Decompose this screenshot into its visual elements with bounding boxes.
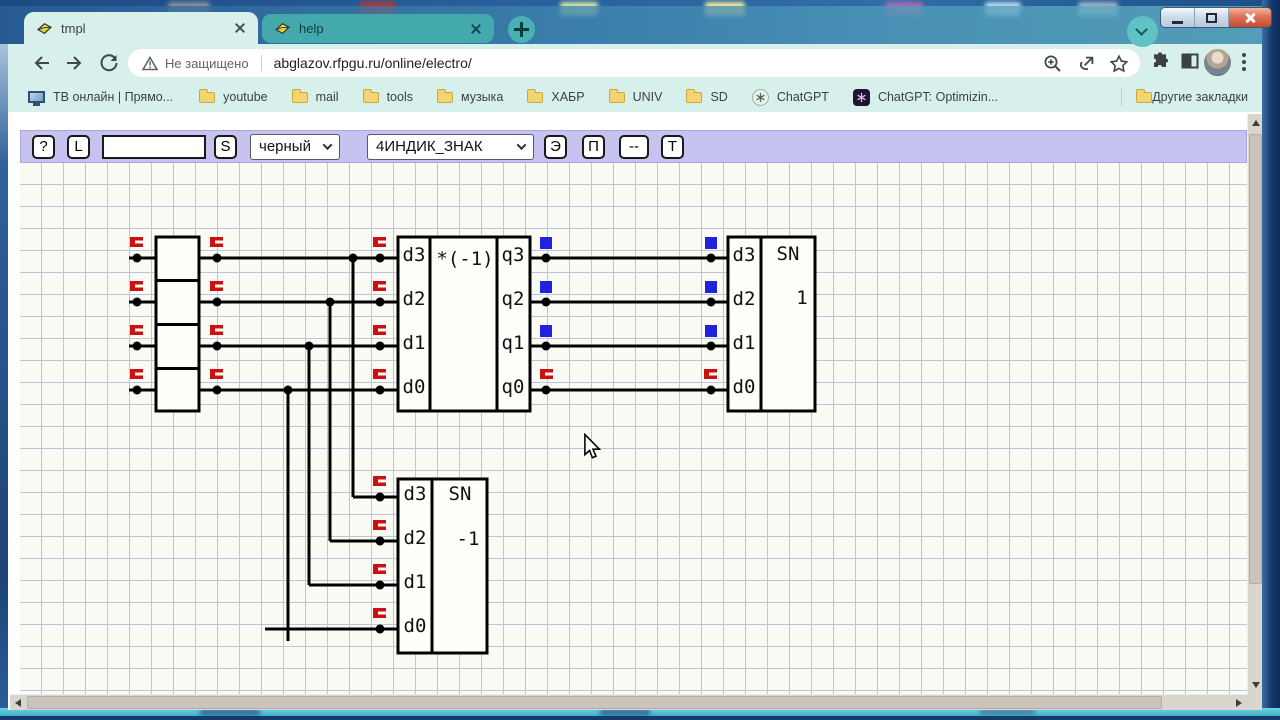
pin-label: d2 xyxy=(733,288,756,310)
signal-marker-off[interactable] xyxy=(210,237,223,247)
load-button[interactable]: L xyxy=(67,135,90,159)
pin-dot[interactable] xyxy=(133,254,142,263)
folder-icon xyxy=(1136,92,1152,103)
folder-icon xyxy=(199,92,215,103)
signal-marker-off[interactable] xyxy=(373,564,386,574)
junction-dot[interactable] xyxy=(284,386,293,395)
reload-button[interactable] xyxy=(98,52,120,74)
desktop-icon xyxy=(200,709,260,716)
tab-title: help xyxy=(299,21,324,36)
maximize-icon xyxy=(1206,13,1217,23)
address-bar[interactable]: Не защищено abglazov.rfpgu.ru/online/ele… xyxy=(128,49,1140,77)
security-label: Не защищено xyxy=(165,56,249,71)
divider xyxy=(1121,88,1122,106)
bookmarks-bar: ТВ онлайн | Прямо... youtube mail tools … xyxy=(8,82,1262,112)
pin-dot[interactable] xyxy=(707,342,716,351)
indicator-value: -1 xyxy=(457,528,480,550)
zoom-icon[interactable] xyxy=(1043,54,1063,74)
bookmark-folder[interactable]: музыка xyxy=(437,90,503,104)
pin-dot[interactable] xyxy=(213,298,222,307)
signal-marker-on[interactable] xyxy=(705,281,717,293)
pin-label: q1 xyxy=(502,332,525,354)
bookmark-folder[interactable]: tools xyxy=(363,90,413,104)
pin-dot[interactable] xyxy=(542,342,551,351)
signal-marker-off[interactable] xyxy=(210,281,223,291)
signal-marker-off[interactable] xyxy=(373,325,386,335)
close-icon xyxy=(1244,12,1256,24)
pin-dot[interactable] xyxy=(376,537,385,546)
tab-help[interactable]: help xyxy=(262,14,494,43)
pin-label: q0 xyxy=(502,376,525,398)
pin-dot[interactable] xyxy=(376,254,385,263)
bookmark-item[interactable]: ChatGPT xyxy=(752,89,829,106)
monitor-icon xyxy=(28,91,45,103)
wire-button[interactable]: -- xyxy=(619,135,649,159)
close-window-button[interactable] xyxy=(1229,8,1271,27)
signal-marker-off[interactable] xyxy=(210,369,223,379)
pin-label: d1 xyxy=(733,332,756,354)
extensions-puzzle-icon[interactable] xyxy=(1150,51,1170,71)
pin-dot[interactable] xyxy=(376,625,385,634)
chevron-down-icon xyxy=(1135,23,1148,36)
pin-dot[interactable] xyxy=(376,581,385,590)
pin-label: d3 xyxy=(403,244,426,266)
signal-marker-off[interactable] xyxy=(130,281,143,291)
horizontal-scrollbar[interactable] xyxy=(10,694,1247,710)
scroll-left-arrow[interactable] xyxy=(15,699,21,707)
blocks[interactable] xyxy=(156,237,815,653)
scroll-down-arrow[interactable] xyxy=(1252,682,1260,688)
signal-marker-off[interactable] xyxy=(540,369,553,379)
chatgpt-icon xyxy=(752,89,769,106)
pin-dot[interactable] xyxy=(376,386,385,395)
pin-label: d1 xyxy=(403,332,426,354)
vertical-scrollbar[interactable] xyxy=(1247,114,1262,694)
share-icon[interactable] xyxy=(1076,54,1096,74)
bookmark-folder[interactable]: mail xyxy=(292,90,339,104)
scrollbar-thumb[interactable] xyxy=(1249,134,1262,584)
signal-marker-off[interactable] xyxy=(130,369,143,379)
folder-icon xyxy=(437,92,453,103)
window-border xyxy=(0,44,8,710)
signal-marker-off[interactable] xyxy=(704,369,717,379)
scroll-up-arrow[interactable] xyxy=(1252,120,1260,126)
pin-dot[interactable] xyxy=(707,386,716,395)
minimize-icon xyxy=(1172,21,1183,24)
bookmark-star-icon[interactable] xyxy=(1109,54,1129,74)
tab-title: tmpl xyxy=(61,21,86,36)
name-input[interactable] xyxy=(102,135,206,159)
indicator-value: 1 xyxy=(796,287,807,309)
bookmark-folder[interactable]: UNIV xyxy=(609,90,663,104)
divider xyxy=(261,55,262,71)
folder-icon xyxy=(363,92,379,103)
pin-label: d0 xyxy=(404,615,427,637)
signal-marker-on[interactable] xyxy=(705,237,717,249)
folder-icon xyxy=(527,92,543,103)
window-controls xyxy=(1160,7,1272,28)
block-title: SN xyxy=(449,483,472,505)
menu-kebab-icon[interactable] xyxy=(1242,53,1246,57)
url-text: abglazov.rfpgu.ru/online/electro/ xyxy=(274,55,472,71)
folder-icon xyxy=(292,92,308,103)
pin-dot[interactable] xyxy=(133,298,142,307)
tab-tmpl[interactable]: tmpl xyxy=(24,12,258,44)
bookmark-folder[interactable]: youtube xyxy=(199,90,267,104)
pin-dot[interactable] xyxy=(707,298,716,307)
book-favicon xyxy=(274,20,291,37)
pin-dot[interactable] xyxy=(376,493,385,502)
signal-marker-on[interactable] xyxy=(705,325,717,337)
signal-marker-off[interactable] xyxy=(210,325,223,335)
scroll-right-arrow[interactable] xyxy=(1236,699,1242,707)
element-button[interactable]: Э xyxy=(544,135,567,159)
pin-dot[interactable] xyxy=(542,254,551,263)
signal-marker-off[interactable] xyxy=(373,608,386,618)
pin-dot[interactable] xyxy=(707,254,716,263)
minimize-button[interactable] xyxy=(1161,8,1195,27)
mouse-cursor xyxy=(583,433,601,460)
new-tab-button[interactable] xyxy=(508,16,535,43)
folder-icon xyxy=(686,92,702,103)
bookmark-item[interactable]: ChatGPT: Optimizin... xyxy=(853,89,998,106)
browser-toolbar: Не защищено abglazov.rfpgu.ru/online/ele… xyxy=(8,44,1262,82)
pin-dot[interactable] xyxy=(213,342,222,351)
scrollbar-corner xyxy=(1247,694,1262,710)
scrollbar-thumb[interactable] xyxy=(27,696,1162,709)
pin-dot[interactable] xyxy=(376,342,385,351)
not-secure-warning-icon xyxy=(142,56,158,71)
window-border xyxy=(1262,0,1280,712)
pin-label: d0 xyxy=(403,376,426,398)
pin-dot[interactable] xyxy=(376,298,385,307)
screen: tmpl help xyxy=(0,0,1280,720)
bookmark-item[interactable]: ТВ онлайн | Прямо... xyxy=(28,90,173,104)
close-icon[interactable] xyxy=(470,23,482,35)
back-button[interactable] xyxy=(30,52,52,74)
web-page: ? L S черный 4ИНДИК_ЗНАК Э П -- Т xyxy=(8,112,1262,710)
junction-dot[interactable] xyxy=(305,342,314,351)
pin-dot[interactable] xyxy=(133,386,142,395)
text-button[interactable]: Т xyxy=(661,135,684,159)
desktop-icon xyxy=(600,709,650,716)
save-button[interactable]: S xyxy=(214,135,237,159)
pin-dot[interactable] xyxy=(133,342,142,351)
bookmark-folder[interactable]: SD xyxy=(686,90,727,104)
signal-marker-off[interactable] xyxy=(373,281,386,291)
forward-button[interactable] xyxy=(64,52,86,74)
pin-label: d3 xyxy=(733,244,756,266)
close-icon[interactable] xyxy=(234,22,246,34)
pin-dot[interactable] xyxy=(213,386,222,395)
pin-dot[interactable] xyxy=(542,298,551,307)
signal-marker-off[interactable] xyxy=(373,476,386,486)
pin-label: q2 xyxy=(502,288,525,310)
desktop-wallpaper xyxy=(0,716,1280,720)
block-title: SN xyxy=(777,243,800,265)
color-select[interactable]: черный xyxy=(250,134,340,160)
help-button[interactable]: ? xyxy=(32,135,55,159)
block-title: *(-1) xyxy=(436,248,493,270)
pin-dot[interactable] xyxy=(542,386,551,395)
signal-marker-off[interactable] xyxy=(373,520,386,530)
component-select[interactable]: 4ИНДИК_ЗНАК xyxy=(367,134,534,160)
junction-dot[interactable] xyxy=(349,254,358,263)
panel-button[interactable]: П xyxy=(582,135,605,159)
signal-marker-on[interactable] xyxy=(540,281,552,293)
signal-marker-off[interactable] xyxy=(130,325,143,335)
maximize-button[interactable] xyxy=(1195,8,1229,27)
pin-label: d1 xyxy=(404,571,427,593)
other-bookmarks[interactable]: Другие закладки xyxy=(1121,88,1248,106)
pin-label: d3 xyxy=(404,483,427,505)
bookmark-folder[interactable]: ХАБР xyxy=(527,90,584,104)
sidebar-icon[interactable] xyxy=(1180,51,1200,71)
signal-marker-on[interactable] xyxy=(540,325,552,337)
pin-label: q3 xyxy=(502,244,525,266)
signal-marker-on[interactable] xyxy=(540,237,552,249)
pin-dot[interactable] xyxy=(213,254,222,263)
circuit-canvas[interactable]: d3 d2 d1 d0 q3 q2 q1 q0 *(-1) d3 d2 d1 d… xyxy=(20,163,1247,694)
junction-dot[interactable] xyxy=(326,298,335,307)
folder-icon xyxy=(609,92,625,103)
book-favicon xyxy=(36,20,53,37)
app-toolbar: ? L S черный 4ИНДИК_ЗНАК Э П -- Т xyxy=(20,130,1247,163)
profile-avatar[interactable] xyxy=(1204,49,1231,76)
signal-marker-off[interactable] xyxy=(373,369,386,379)
pin-label: d2 xyxy=(403,288,426,310)
pin-label: d2 xyxy=(404,527,427,549)
chatgpt-icon xyxy=(853,89,870,106)
tab-search-button[interactable] xyxy=(1127,16,1158,47)
chevron-down-icon xyxy=(323,140,333,150)
desktop-icon xyxy=(980,709,1035,716)
chevron-down-icon xyxy=(517,140,527,150)
signal-marker-off[interactable] xyxy=(130,237,143,247)
signal-marker-off[interactable] xyxy=(373,237,386,247)
pin-label: d0 xyxy=(733,376,756,398)
